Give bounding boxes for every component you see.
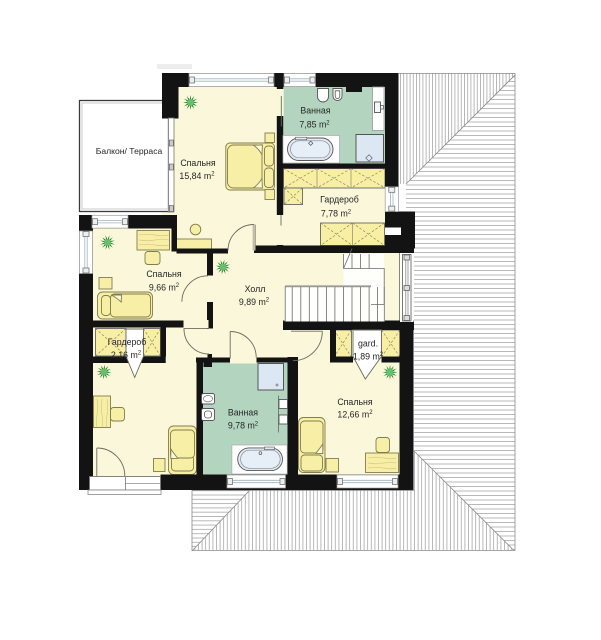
svg-text:7,78 m2: 7,78 m2 (321, 209, 352, 219)
svg-text:1,89 m2: 1,89 m2 (353, 351, 384, 361)
svg-text:2,16 m2: 2,16 m2 (111, 350, 142, 360)
svg-text:Спальня: Спальня (146, 269, 182, 279)
svg-text:Балкон/ Терраса: Балкон/ Терраса (96, 146, 163, 156)
svg-text:Спальня: Спальня (180, 158, 216, 168)
svg-text:9,66 m2: 9,66 m2 (149, 282, 180, 292)
svg-text:Холл: Холл (245, 284, 266, 294)
svg-text:12,66 m2: 12,66 m2 (337, 409, 373, 419)
svg-text:Гардероб: Гардероб (320, 195, 359, 205)
svg-text:Спальня: Спальня (337, 397, 373, 407)
svg-text:9,78 m2: 9,78 m2 (228, 421, 259, 431)
svg-text:7,85 m2: 7,85 m2 (299, 120, 330, 130)
svg-text:15,84 m2: 15,84 m2 (179, 171, 215, 181)
svg-text:gard.: gard. (358, 338, 378, 348)
svg-text:Ванная: Ванная (300, 106, 330, 116)
svg-text:9,89 m2: 9,89 m2 (239, 297, 270, 307)
svg-text:Гардероб: Гардероб (108, 337, 147, 347)
svg-text:Ванная: Ванная (228, 407, 258, 417)
